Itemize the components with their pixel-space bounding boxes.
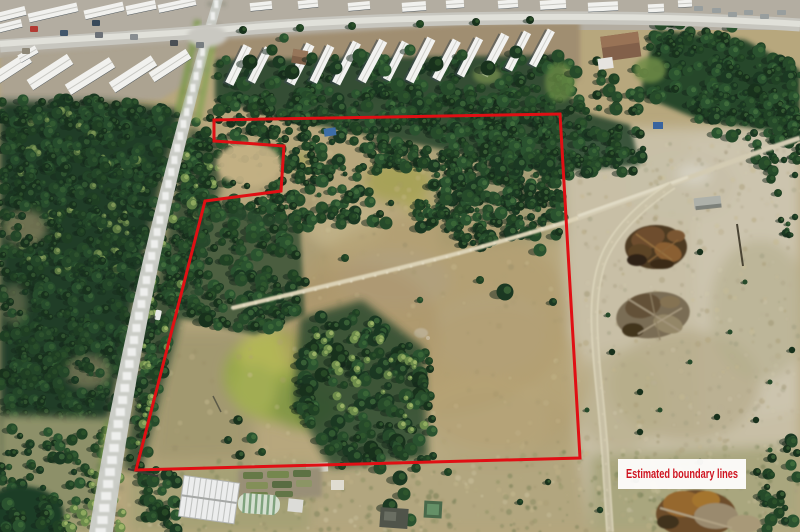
- svg-text:Estimated boundary lines: Estimated boundary lines: [626, 466, 738, 481]
